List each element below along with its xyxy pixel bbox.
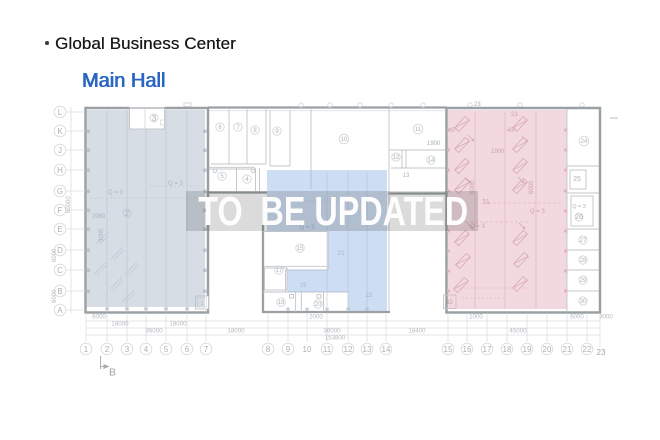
svg-text:K: K — [57, 127, 63, 136]
svg-text:18000: 18000 — [111, 321, 129, 328]
svg-text:29: 29 — [580, 278, 587, 284]
svg-text:G: G — [57, 187, 63, 196]
svg-text:10: 10 — [341, 137, 348, 143]
svg-text:18000: 18000 — [227, 328, 245, 335]
svg-text:4: 4 — [245, 177, 249, 183]
svg-text:6000: 6000 — [52, 289, 58, 303]
svg-text:6: 6 — [218, 125, 222, 131]
svg-text:12: 12 — [344, 345, 353, 354]
svg-text:22: 22 — [583, 345, 592, 354]
svg-text:1: 1 — [84, 345, 89, 354]
svg-text:30: 30 — [580, 299, 587, 305]
svg-text:6000: 6000 — [52, 248, 58, 262]
svg-text:20: 20 — [543, 345, 552, 354]
svg-text:17: 17 — [483, 345, 492, 354]
svg-text:6: 6 — [185, 345, 190, 354]
svg-text:8: 8 — [253, 128, 257, 134]
svg-text:7: 7 — [236, 125, 240, 131]
svg-text:H: H — [57, 166, 63, 175]
svg-text:24: 24 — [581, 139, 588, 145]
svg-text:36000: 36000 — [323, 328, 341, 335]
svg-text:J: J — [58, 146, 62, 155]
svg-text:36000: 36000 — [145, 328, 163, 335]
svg-text:60000: 60000 — [66, 196, 72, 213]
svg-text:15: 15 — [297, 246, 304, 252]
svg-text:3: 3 — [125, 345, 130, 354]
svg-text:2000: 2000 — [309, 314, 323, 321]
svg-text:3: 3 — [152, 114, 157, 123]
svg-text:9: 9 — [275, 129, 279, 135]
svg-text:Q = 3: Q = 3 — [572, 204, 586, 210]
svg-text:10: 10 — [303, 345, 312, 354]
svg-text:E: E — [57, 225, 62, 234]
svg-text:L: L — [58, 108, 63, 117]
svg-text:4: 4 — [144, 345, 149, 354]
svg-text:45000: 45000 — [509, 328, 527, 335]
svg-text:A: A — [57, 306, 63, 315]
svg-text:F: F — [58, 206, 63, 215]
svg-text:5: 5 — [220, 174, 224, 180]
svg-text:1900: 1900 — [427, 141, 441, 147]
svg-text:25: 25 — [573, 176, 581, 183]
svg-text:15: 15 — [444, 345, 453, 354]
svg-text:14: 14 — [382, 345, 391, 354]
svg-text:18: 18 — [503, 345, 512, 354]
svg-text:8: 8 — [266, 345, 271, 354]
svg-text:6000: 6000 — [570, 314, 584, 321]
svg-text:28: 28 — [580, 258, 587, 264]
svg-text:26: 26 — [575, 214, 583, 221]
svg-text:21: 21 — [563, 345, 572, 354]
svg-text:13: 13 — [363, 345, 372, 354]
svg-text:5: 5 — [164, 345, 169, 354]
svg-text:B: B — [109, 367, 116, 379]
svg-text:D: D — [57, 246, 63, 255]
svg-text:14: 14 — [428, 158, 435, 164]
svg-text:B: B — [57, 287, 62, 296]
svg-text:17: 17 — [276, 268, 283, 274]
svg-text:2: 2 — [105, 345, 110, 354]
svg-text:153800: 153800 — [325, 335, 346, 342]
svg-text:13: 13 — [403, 173, 410, 179]
svg-text:6000: 6000 — [92, 314, 106, 321]
svg-text:18400: 18400 — [408, 328, 426, 335]
svg-text:11: 11 — [323, 345, 332, 354]
svg-text:20: 20 — [315, 302, 322, 308]
svg-text:1000: 1000 — [469, 314, 483, 321]
svg-text:19: 19 — [523, 345, 532, 354]
svg-text:11: 11 — [415, 127, 422, 133]
svg-text:23: 23 — [597, 348, 606, 357]
svg-text:C: C — [57, 266, 63, 275]
svg-text:27: 27 — [580, 238, 587, 244]
svg-text:7: 7 — [204, 345, 209, 354]
svg-text:18: 18 — [278, 300, 285, 306]
svg-text:3000: 3000 — [599, 314, 613, 321]
svg-text:18000: 18000 — [169, 321, 187, 328]
svg-text:12: 12 — [393, 155, 400, 161]
svg-text:9: 9 — [286, 345, 291, 354]
svg-text:16: 16 — [463, 345, 472, 354]
